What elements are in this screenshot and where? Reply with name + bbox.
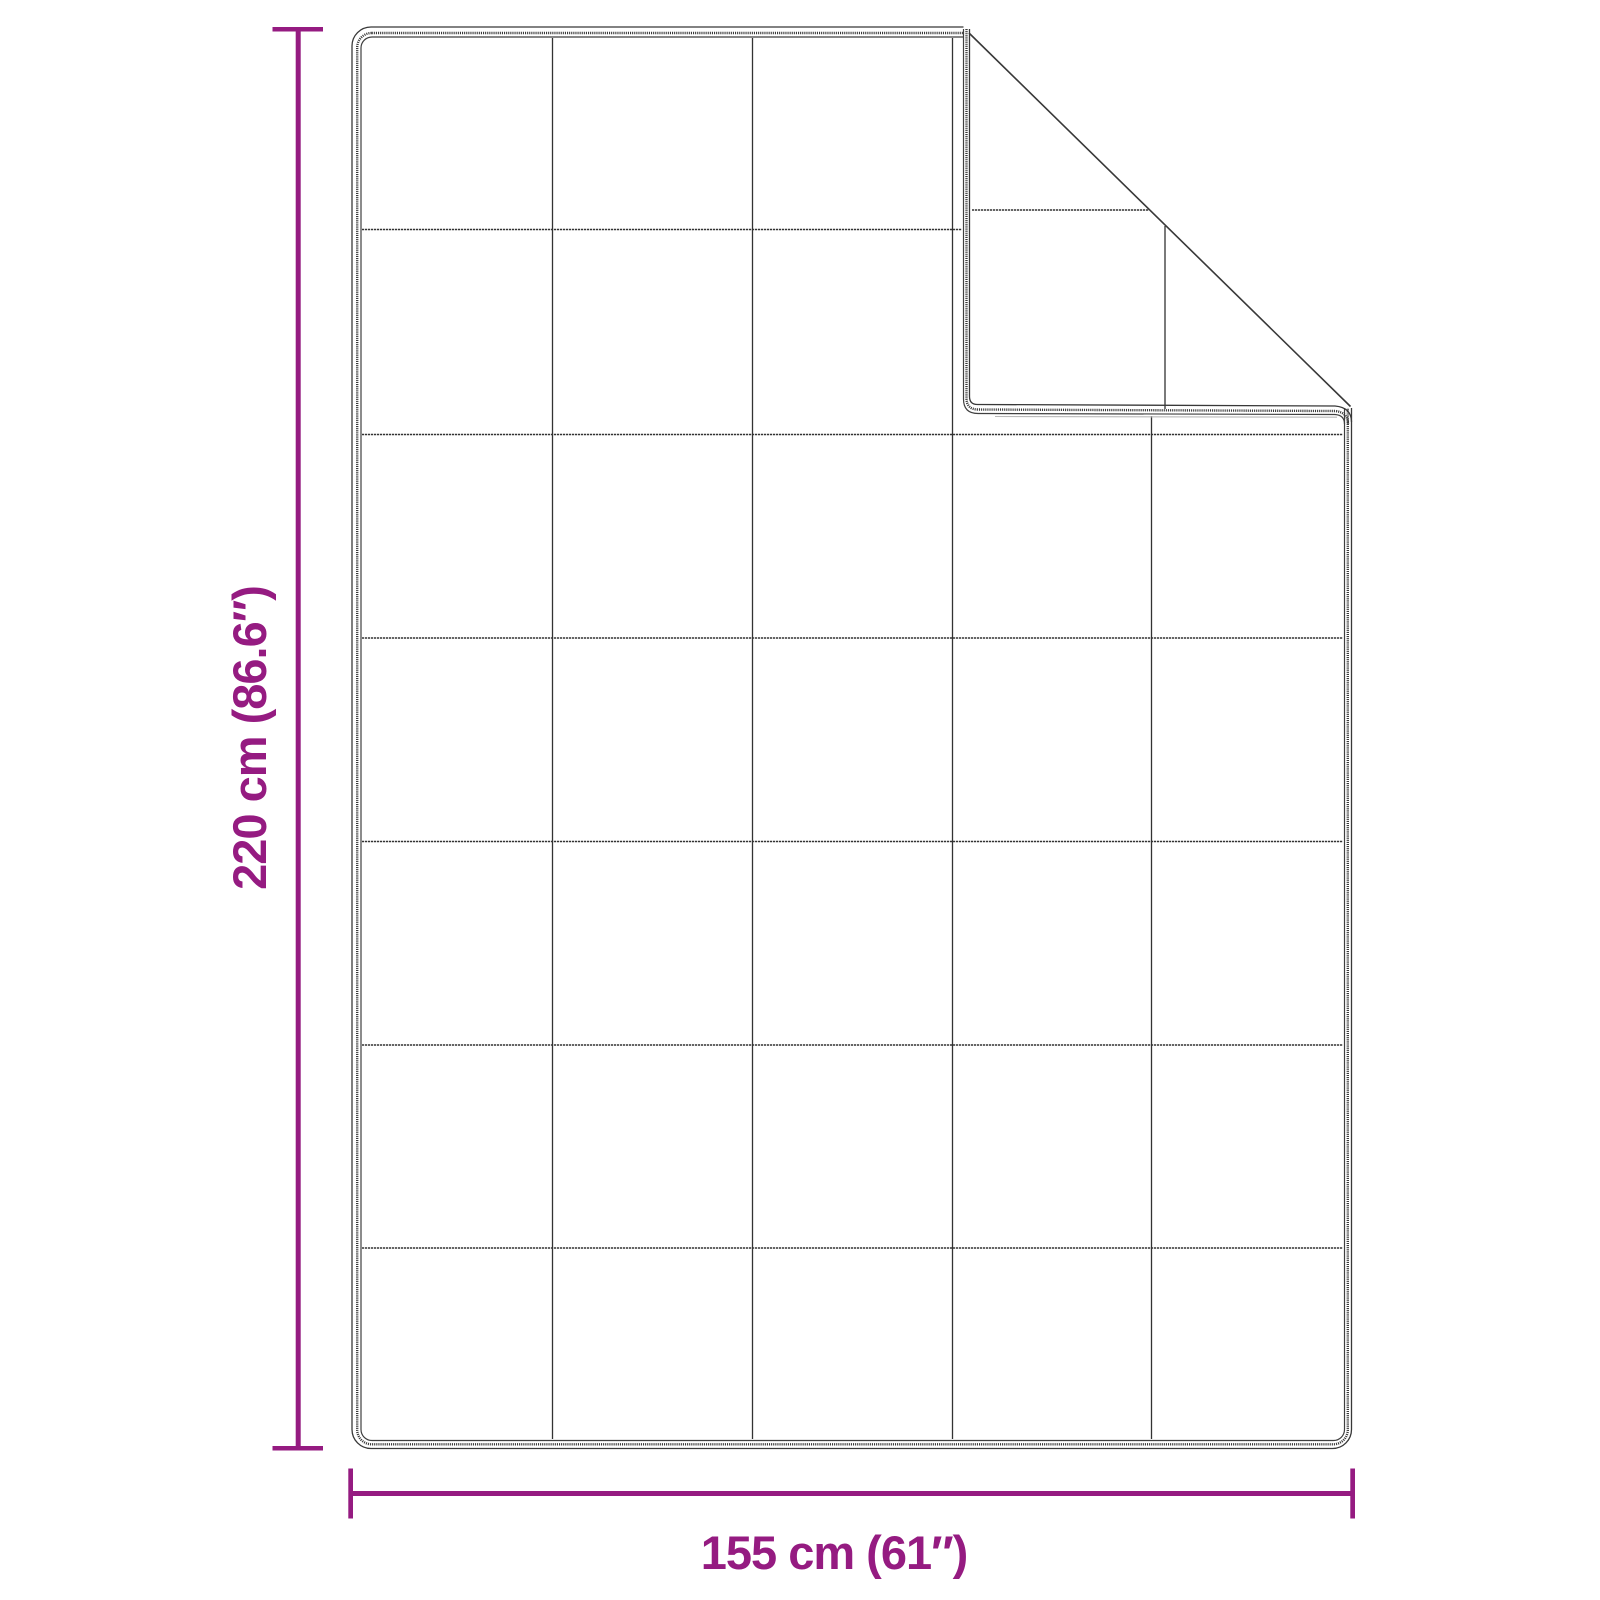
svg-text:220 cm (86.6″): 220 cm (86.6″) (223, 586, 276, 890)
svg-text:155 cm (61″): 155 cm (61″) (701, 1526, 968, 1579)
